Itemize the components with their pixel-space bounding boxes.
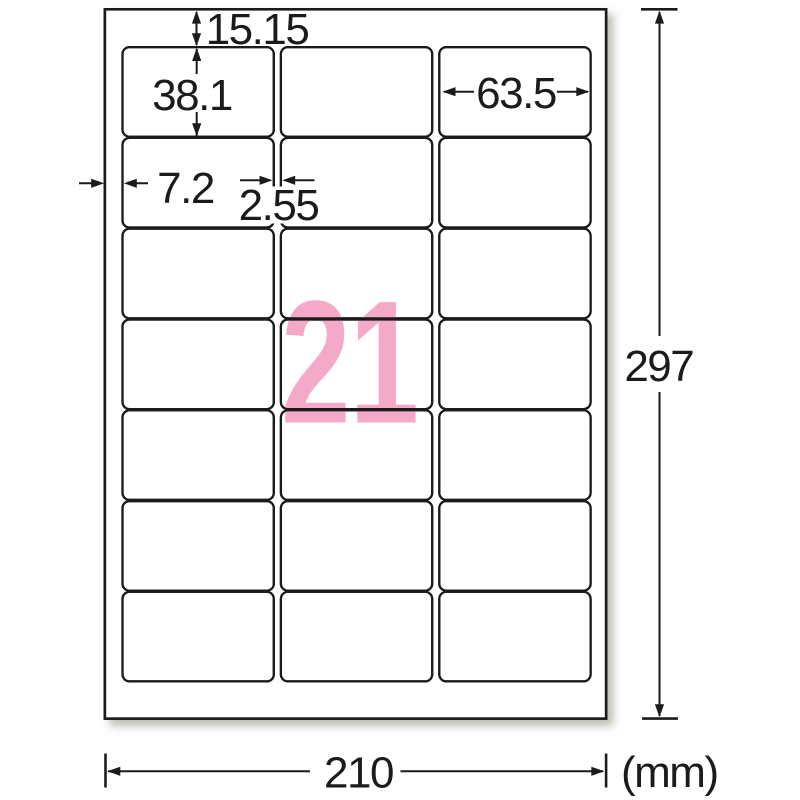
svg-text:63.5: 63.5 [476, 69, 556, 118]
svg-text:297: 297 [624, 342, 693, 391]
svg-text:15.15: 15.15 [206, 5, 309, 54]
svg-text:2.55: 2.55 [239, 181, 319, 230]
svg-text:(mm): (mm) [621, 748, 718, 797]
svg-text:21: 21 [281, 266, 418, 461]
svg-text:38.1: 38.1 [152, 71, 232, 120]
svg-text:210: 210 [324, 749, 393, 798]
svg-text:7.2: 7.2 [157, 164, 214, 213]
